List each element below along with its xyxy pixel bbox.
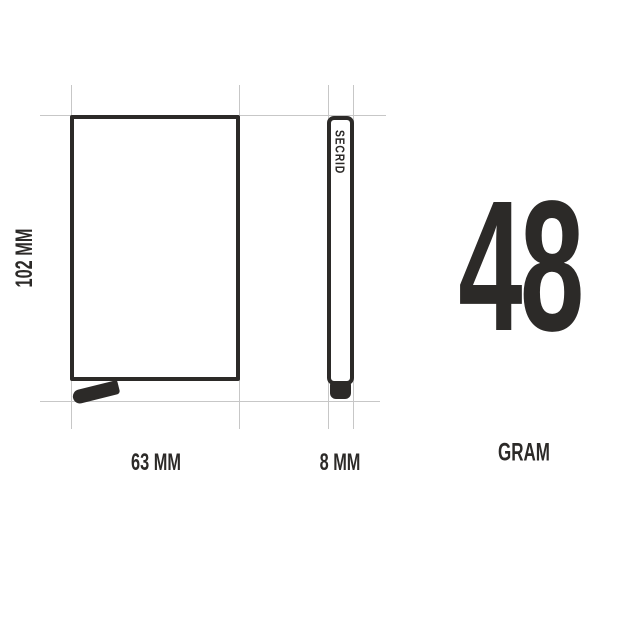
side-width-dimension-label: 8 MM: [320, 449, 361, 477]
guide-line-bottom: [40, 401, 380, 402]
side-lever-tab-shape: [330, 383, 351, 399]
brand-label: SECRID: [333, 130, 348, 174]
weight-value: 48: [458, 174, 581, 360]
front-width-dimension-label: 63 MM: [131, 449, 181, 477]
height-dimension-label: 102 MM: [11, 229, 39, 288]
weight-unit-label: GRAM: [498, 439, 550, 468]
product-dimension-diagram: SECRID 102 MM 63 MM 8 MM 48 GRAM: [0, 0, 640, 640]
cardprotector-front-outline: [70, 115, 240, 381]
